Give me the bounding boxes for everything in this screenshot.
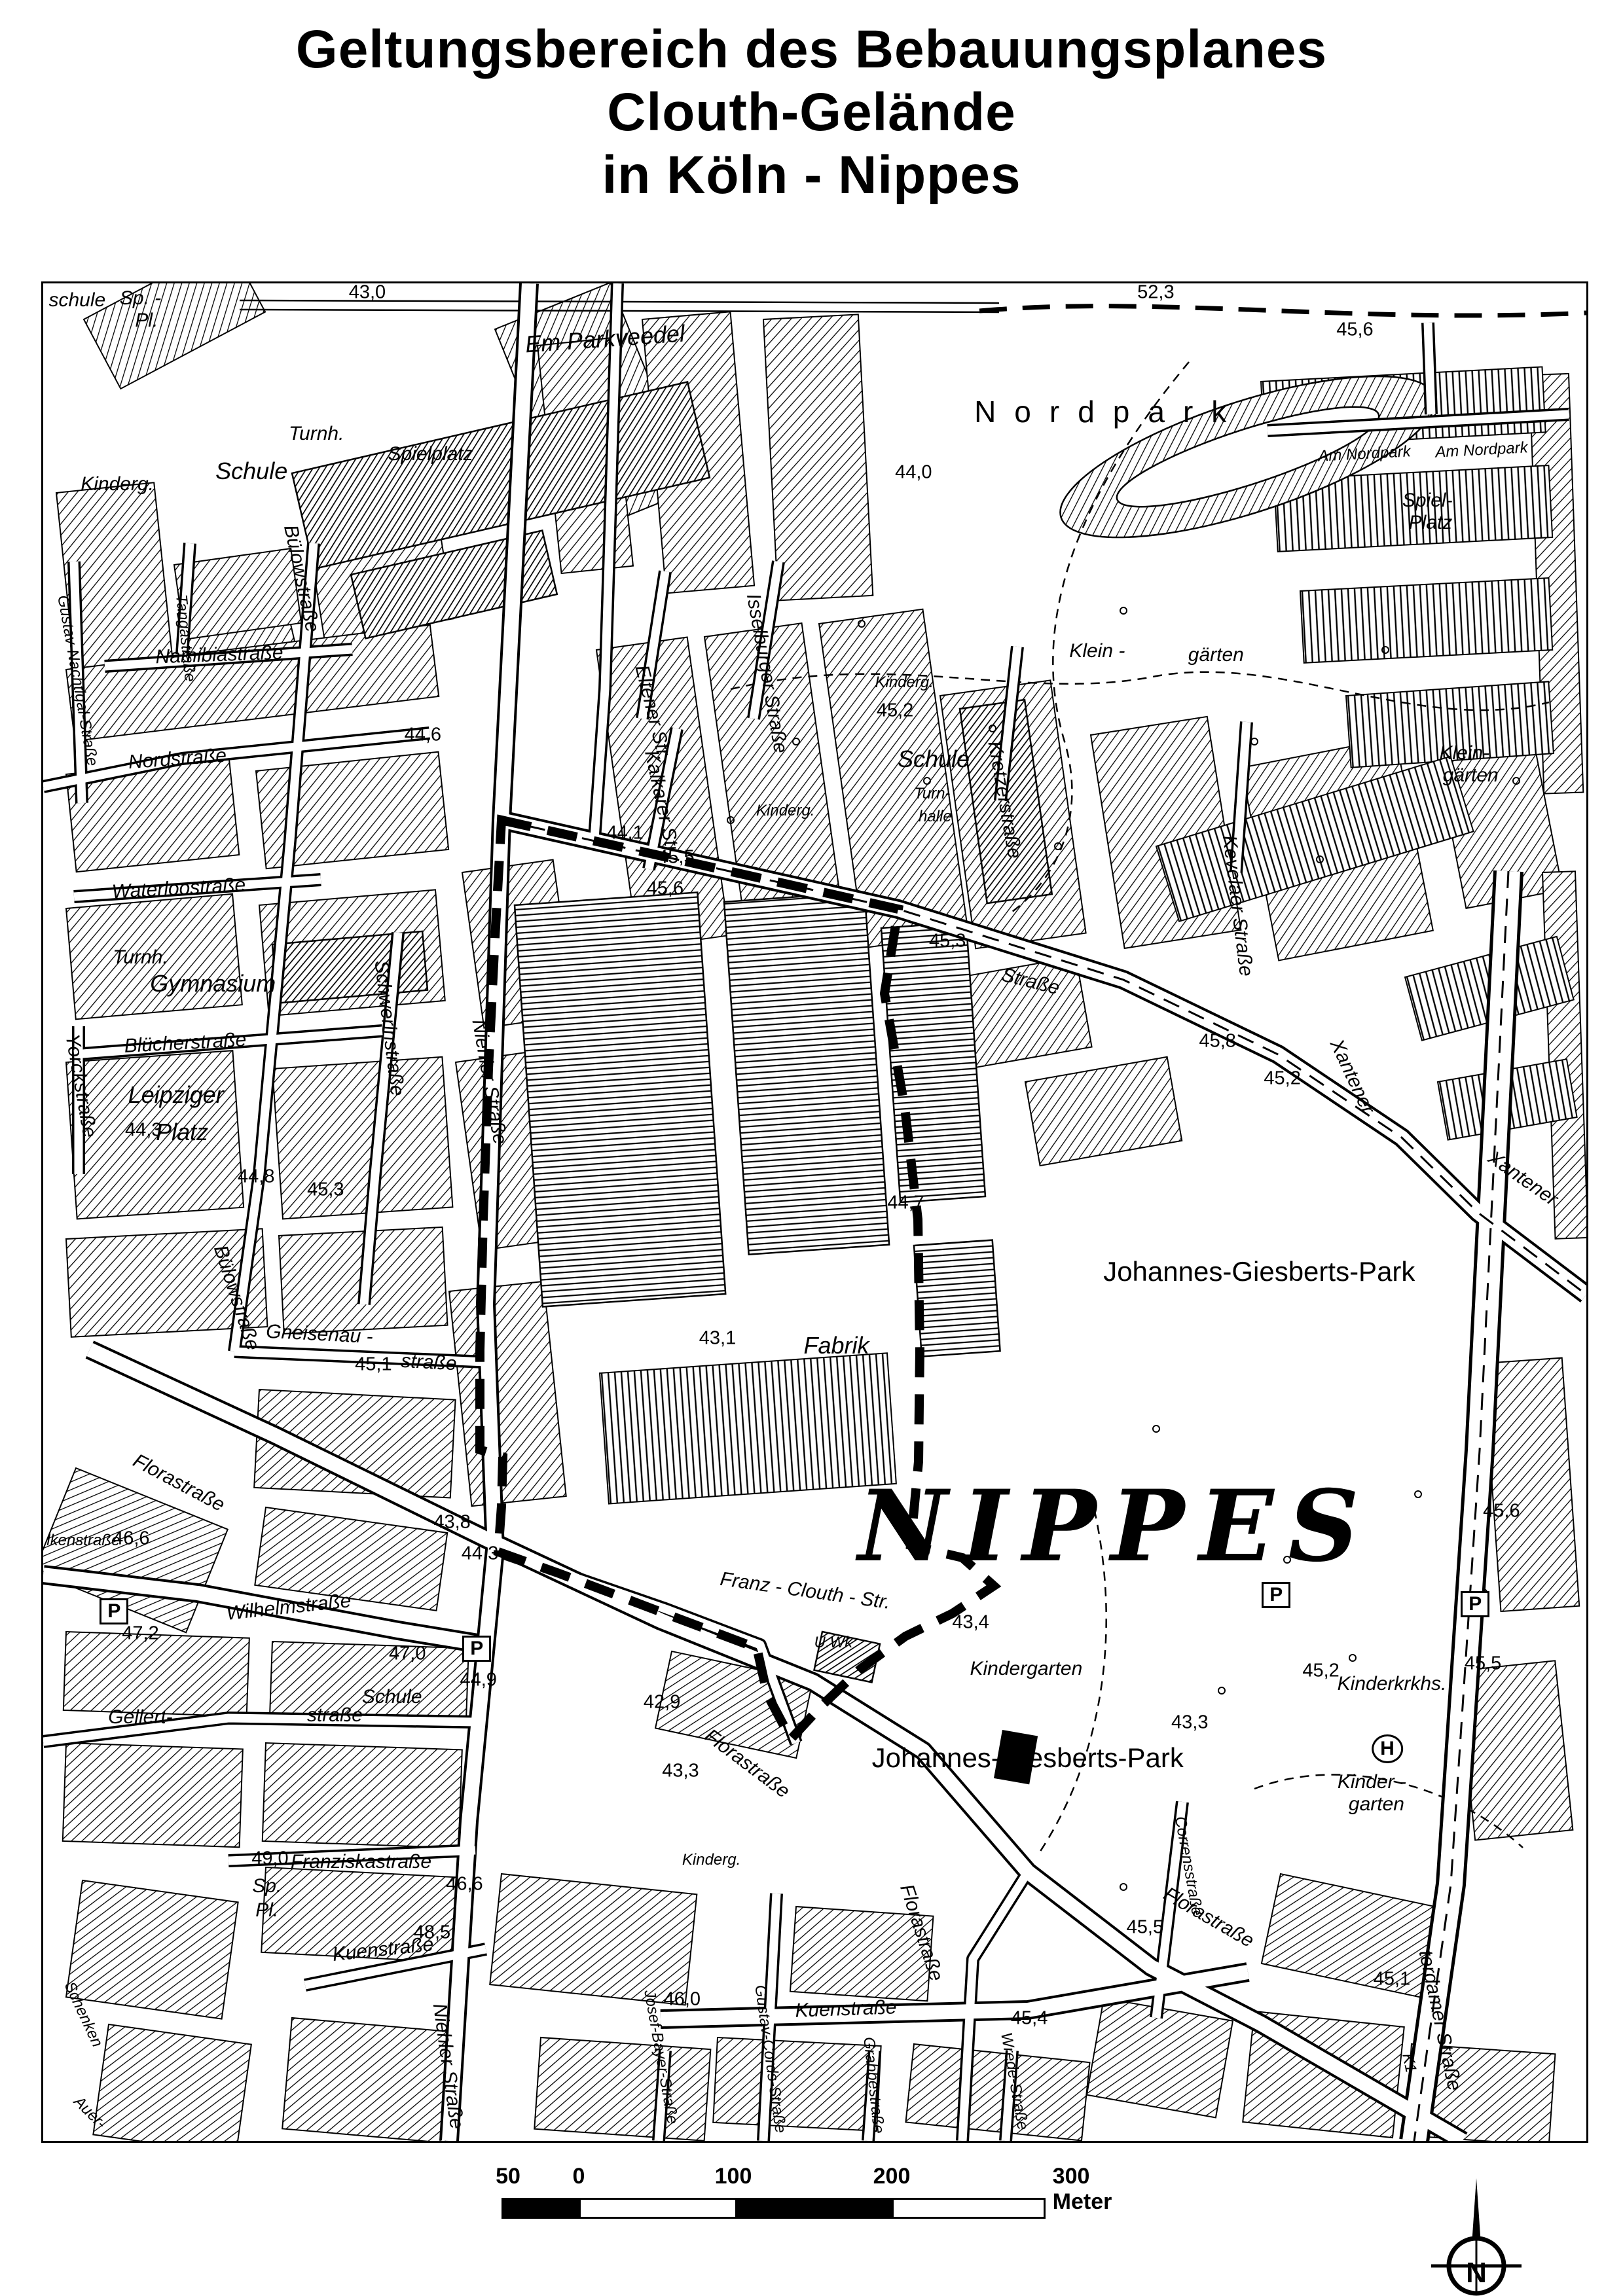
map-label: Kinderg. — [756, 803, 814, 819]
map-label: Xantener — [1326, 1036, 1377, 1117]
map-label: Kuenstraße — [331, 1935, 434, 1965]
map-labels: schuleSp. -Pl.43,0Turnh.SchuleKinderg.Sp… — [43, 283, 1586, 2141]
map-label: Xantener — [1485, 1148, 1561, 1210]
map-label: Johannes-Giesberts-Park — [872, 1744, 1184, 1772]
map-label: Em Parkveedel — [524, 322, 685, 357]
map-label: U.Wk — [814, 1635, 852, 1651]
map-label: halle — [919, 809, 952, 825]
map-label: Florastraße — [896, 1882, 946, 1984]
map-label: Florastraße — [701, 1726, 793, 1802]
map-label: Waterloostraße — [111, 876, 246, 903]
map-label: Kuenstraße — [795, 1998, 897, 2020]
map-label: 45,2 — [1264, 1069, 1300, 1088]
map-label: Johannes-Giesberts-Park — [1103, 1258, 1415, 1285]
hospital-helipad-symbol: H — [1372, 1734, 1403, 1763]
parking-symbol: P — [100, 1598, 128, 1624]
scale-label-100: 100 — [715, 2164, 752, 2189]
map-label: Pl. — [135, 311, 158, 331]
map-label: straße — [401, 1352, 457, 1374]
north-arrow-icon: N — [1427, 2174, 1525, 2296]
map-label: 45,2 — [877, 701, 913, 720]
map-label: 45,6 — [1483, 1501, 1520, 1520]
map-label: Spiel- — [1402, 491, 1453, 511]
map-label: straße — [307, 1706, 363, 1725]
map-label: Sp. - — [120, 289, 161, 308]
map-label: Nordpark — [974, 397, 1245, 427]
scale-label-0: 0 — [573, 2164, 585, 2189]
map-frame: schuleSp. -Pl.43,0Turnh.SchuleKinderg.Sp… — [41, 281, 1588, 2143]
map-label: Niehler Straße — [469, 1018, 510, 1146]
scale-label-200: 200 — [873, 2164, 911, 2189]
map-label: Turnh. — [289, 424, 344, 444]
map-label: Klein- — [1439, 744, 1489, 763]
map-label: Spielplatz — [388, 444, 473, 464]
map-label: 46,0 — [664, 1990, 701, 2009]
map-label: 43,3 — [662, 1762, 699, 1781]
map-label: Gymnasium — [150, 972, 276, 996]
map-label: Gellert- — [108, 1708, 172, 1727]
map-label: Schule — [215, 459, 287, 483]
map-label: 46,6 — [446, 1875, 483, 1894]
north-letter: N — [1466, 2257, 1487, 2289]
map-label: 42,9 — [644, 1693, 680, 1712]
map-label: Platz — [1409, 513, 1453, 533]
map-label: Gustav-Nachtigal-Straße — [54, 594, 100, 767]
map-label: Turn- — [914, 786, 951, 802]
map-label: Fabrik — [803, 1334, 869, 1357]
map-label: lkenstraße — [46, 1533, 120, 1549]
scale-bar-segments — [501, 2198, 1046, 2219]
map-label: Bülowstraße — [210, 1243, 263, 1353]
map-label: 45,5 — [1465, 1654, 1501, 1673]
map-label: 44,6 — [405, 725, 441, 744]
map-label: 47,2 — [122, 1624, 158, 1643]
map-label: 45,3 — [929, 931, 966, 950]
map-label: Kretzerstraße — [985, 740, 1025, 860]
map-label: 45,4 — [1011, 2009, 1048, 2028]
map-label: Franziskastraße — [291, 1852, 431, 1872]
map-label: Isselburger Straße — [743, 592, 790, 755]
map-label: Niehler Straße — [429, 2003, 466, 2131]
page-title: Geltungsbereich des Bebauungsplanes Clou… — [0, 18, 1623, 207]
map-label: 45,6 — [647, 880, 684, 899]
map-label: 49,0 — [251, 1849, 288, 1868]
map-label: gärten — [1443, 766, 1499, 785]
map-label: 44,0 — [895, 463, 932, 482]
map-label: Turnh. — [113, 948, 168, 967]
map-label: 45,1 — [1374, 1970, 1410, 1989]
title-line-1: Geltungsbereich des Bebauungsplanes — [0, 18, 1623, 81]
scale-label-50: 50 — [496, 2164, 520, 2189]
map-label: 45,8 — [1199, 1031, 1235, 1050]
map-label: Leipziger — [128, 1083, 224, 1107]
map-label: Eltener Str. — [631, 663, 674, 762]
map-label: Wrede-Straße — [998, 2032, 1030, 2132]
map-label: 43,8 — [433, 1513, 470, 1532]
map-label: 43,0 — [349, 283, 386, 302]
map-label: Am Nordpark — [1317, 444, 1410, 464]
map-label: Am Nordpark — [1435, 440, 1528, 461]
map-label: Pl. — [255, 1901, 278, 1920]
map-label: Grabbestraße — [860, 2036, 886, 2134]
map-label: 44,9 — [460, 1671, 496, 1690]
map-label: Schule — [362, 1687, 422, 1707]
map-label: 45,5 — [657, 848, 694, 867]
map-label: Kevelaer Straße — [1219, 834, 1256, 977]
map-label: Gneisenau - — [265, 1322, 373, 1348]
map-label: Kalkarer Str. — [641, 749, 683, 859]
map-label: gärten — [1188, 645, 1244, 665]
map-label: Schule — [898, 747, 970, 771]
map-label: Bülowstraße — [280, 524, 322, 634]
map-label: Kinderg. — [875, 675, 934, 691]
map-label: Kinderkrkhs. — [1338, 1674, 1447, 1694]
map-label: 45,5 — [1127, 1918, 1163, 1937]
map-label: 45,1 — [355, 1355, 392, 1374]
title-line-2: Clouth-Gelände — [0, 81, 1623, 144]
map-label: Kinder - — [1338, 1772, 1406, 1792]
map-label: Kinderg. — [682, 1852, 740, 1868]
map-label: Florastraße — [130, 1451, 228, 1515]
map-label: 47,0 — [389, 1645, 426, 1664]
map-label: 52,3 — [1137, 283, 1174, 302]
map-label: 44,1 — [606, 824, 643, 843]
map-label: Platz — [156, 1121, 208, 1144]
map-label: 44,8 — [238, 1168, 274, 1187]
map-label: Blücherstraße — [124, 1030, 247, 1056]
scale-bar: 50 0 100 200 300 Meter — [490, 2164, 1118, 2224]
parking-symbol: P — [462, 1636, 491, 1662]
map-label: Schwerinstraße — [371, 960, 407, 1098]
map-label: Schenken — [62, 1980, 105, 2050]
map-label: 43,4 — [952, 1613, 989, 1632]
map-label: Kinderg. — [81, 475, 154, 494]
map-label: Sp. — [252, 1876, 282, 1896]
map-label: 45,3 — [307, 1180, 344, 1199]
map-label: 45,2 — [1302, 1661, 1339, 1680]
map-label: Nordstraße — [128, 745, 227, 772]
map-label: 45,6 — [1336, 320, 1373, 339]
map-label: 46,6 — [113, 1530, 149, 1549]
map-label: Tangastraße — [173, 594, 198, 683]
map-label: Auer- — [71, 2094, 109, 2132]
map-label: schule — [48, 291, 105, 310]
map-label: 43,1 — [699, 1329, 736, 1348]
scale-label-300: 300 Meter — [1053, 2164, 1112, 2215]
map-label: Namibiastraße — [155, 643, 283, 667]
map-label: Wilhelmstraße — [225, 1592, 352, 1624]
map-label: Klein - — [1069, 641, 1125, 661]
map-label: Gustav-Cords-Straße — [752, 1984, 788, 2134]
title-line-3: in Köln - Nippes — [0, 144, 1623, 207]
map-label: Florastraße — [1160, 1884, 1257, 1952]
map-label: terdamer Straße — [1415, 1948, 1465, 2092]
map-label: Kindergarten — [970, 1659, 1083, 1679]
map-label: Straße — [1000, 965, 1062, 999]
district-label-nippes: NIPPES — [858, 1477, 1374, 1575]
map-label: garten — [1349, 1795, 1404, 1814]
map-label: 44,3 — [462, 1545, 498, 1564]
map-label: K1 — [1399, 2052, 1419, 2074]
parking-symbol: P — [1461, 1591, 1489, 1617]
map-label: Yorckstraße — [62, 1033, 99, 1139]
map-label: 43,3 — [1171, 1713, 1208, 1732]
map-label: 44,7 — [887, 1193, 924, 1212]
parking-symbol: P — [1262, 1582, 1290, 1608]
